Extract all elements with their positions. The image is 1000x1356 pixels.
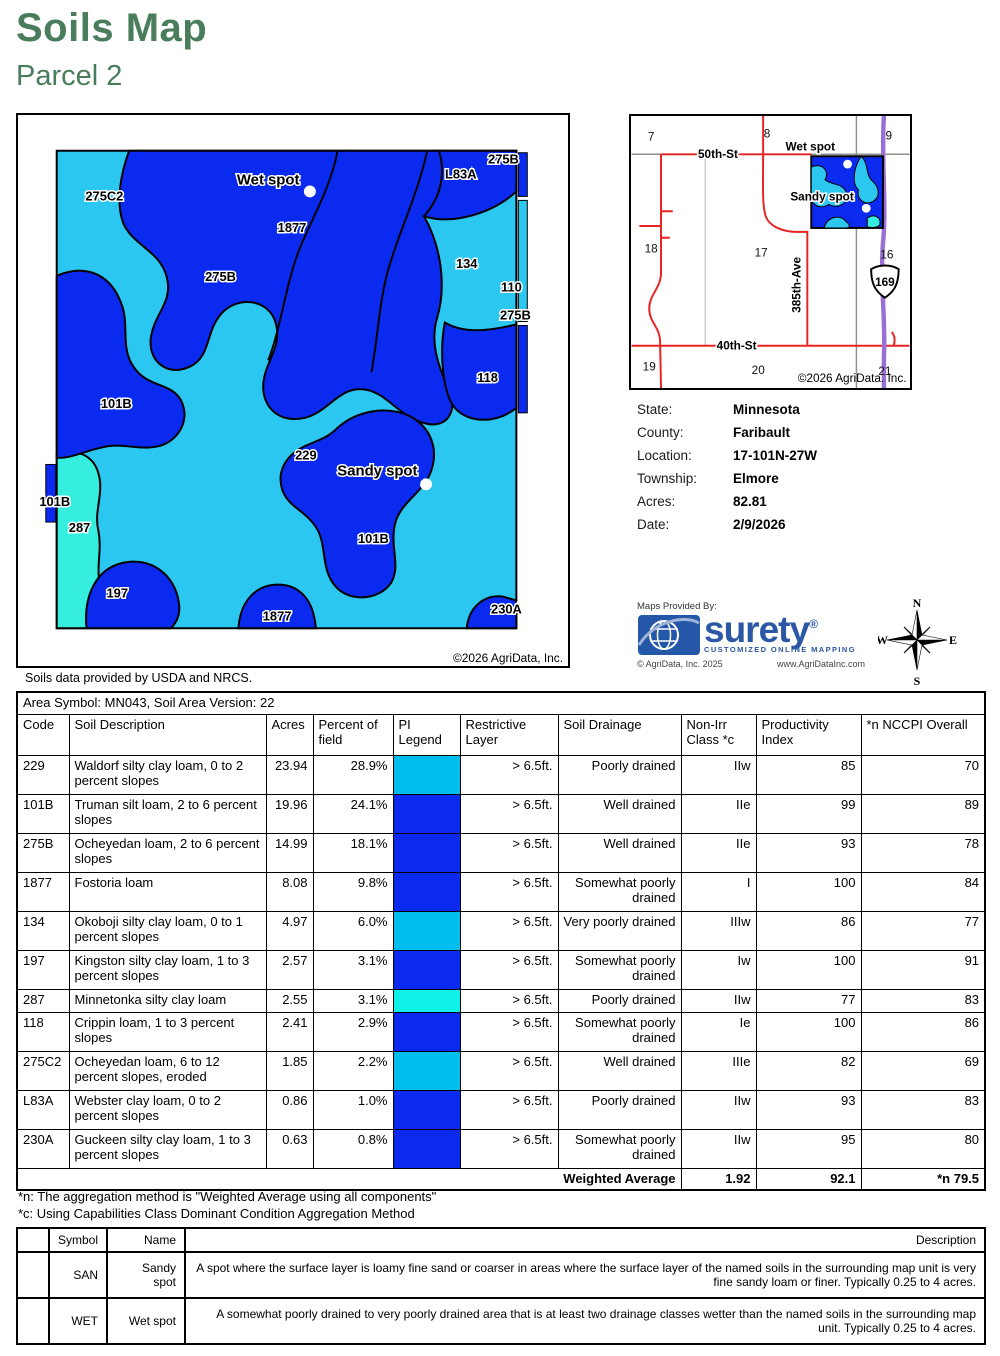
map-soil-label: 101B: [101, 396, 132, 411]
source-note: Soils data provided by USDA and NRCS.: [25, 671, 252, 685]
map-soil-label: 287: [69, 520, 91, 535]
soils-map-panel: 275C2Wet spot1877275BL83A275B134110275B1…: [16, 113, 570, 668]
map-soil-label: Sandy spot: [337, 463, 417, 479]
soil-acres: 1.85: [266, 1052, 313, 1091]
compass-west-label: W: [878, 633, 888, 647]
weighted-average-label: Weighted Average: [17, 1169, 681, 1191]
legend-blank: [17, 1298, 49, 1344]
productivity-index: 93: [756, 834, 861, 873]
legend-name: Wet spot: [107, 1298, 185, 1344]
soil-code: 197: [17, 951, 69, 990]
weighted-average-row: Weighted Average1.9292.1*n 79.5: [17, 1169, 985, 1191]
non-irr-class: IIw: [681, 990, 756, 1013]
map-soil-label: 110: [501, 280, 522, 295]
soil-description: Okoboji silty clay loam, 0 to 1 percent …: [69, 912, 266, 951]
pi-legend-swatch: [393, 912, 460, 951]
restrictive-layer: > 6.5ft.: [460, 912, 558, 951]
column-header: Percent of field: [313, 715, 393, 756]
pi-legend-swatch: [393, 1013, 460, 1052]
pi-legend-swatch: [393, 795, 460, 834]
non-irr-class: IIe: [681, 795, 756, 834]
legend-symbol: SAN: [49, 1252, 107, 1298]
column-header: Soil Description: [69, 715, 266, 756]
soil-code: L83A: [17, 1091, 69, 1130]
pi-legend-swatch: [393, 951, 460, 990]
column-header: Non-Irr Class *c: [681, 715, 756, 756]
map-soil-label: 197: [107, 585, 129, 600]
info-label: State:: [637, 402, 733, 417]
footnote: *c: Using Capabilities Class Dominant Co…: [18, 1205, 436, 1222]
productivity-index: 100: [756, 1013, 861, 1052]
map-soil-label: 230A: [491, 601, 522, 616]
productivity-index: 99: [756, 795, 861, 834]
legend-column-header: Symbol: [49, 1228, 107, 1252]
section-number: 16: [880, 248, 894, 261]
legend-blank: [17, 1252, 49, 1298]
restrictive-layer: > 6.5ft.: [460, 756, 558, 795]
productivity-index: 77: [756, 990, 861, 1013]
map-soil-label: L83A: [445, 167, 477, 182]
non-irr-class: IIw: [681, 1130, 756, 1169]
soil-percent: 18.1%: [313, 834, 393, 873]
non-irr-class: IIe: [681, 834, 756, 873]
productivity-index: 100: [756, 873, 861, 912]
spot-legend-table: SymbolNameDescription SANSandy spotA spo…: [16, 1227, 986, 1345]
info-label: Township:: [637, 471, 733, 486]
non-irr-class: I: [681, 873, 756, 912]
legend-name: Sandy spot: [107, 1252, 185, 1298]
compass-east-label: E: [949, 633, 957, 647]
soil-percent: 6.0%: [313, 912, 393, 951]
non-irr-class: Iw: [681, 951, 756, 990]
pi-legend-swatch: [393, 756, 460, 795]
soil-description: Fostoria loam: [69, 873, 266, 912]
map-soil-label: 275B: [500, 308, 531, 323]
weighted-non-irr-class: 1.92: [681, 1169, 756, 1191]
soil-table-row: 134Okoboji silty clay loam, 0 to 1 perce…: [17, 912, 985, 951]
map-soil-label: 134: [456, 256, 478, 271]
soil-acres: 19.96: [266, 795, 313, 834]
restrictive-layer: > 6.5ft.: [460, 990, 558, 1013]
soil-percent: 1.0%: [313, 1091, 393, 1130]
info-value: 2/9/2026: [733, 517, 786, 532]
soil-acres: 14.99: [266, 834, 313, 873]
soil-data-table: Area Symbol: MN043, Soil Area Version: 2…: [16, 691, 986, 1191]
weighted-nccpi-overall: *n 79.5: [861, 1169, 985, 1191]
soil-sliver: [518, 325, 527, 412]
page-title: Soils Map: [16, 6, 207, 51]
non-irr-class: IIw: [681, 756, 756, 795]
soil-drainage: Well drained: [558, 795, 681, 834]
soil-percent: 9.8%: [313, 873, 393, 912]
section-number: 7: [648, 131, 655, 144]
nccpi-overall: 84: [861, 873, 985, 912]
soil-drainage: Poorly drained: [558, 1091, 681, 1130]
soil-drainage: Well drained: [558, 1052, 681, 1091]
highway-169-shield: 169: [871, 266, 898, 298]
pi-legend-swatch: [393, 990, 460, 1013]
compass-north-label: N: [913, 596, 922, 610]
info-row: County:Faribault: [637, 421, 917, 444]
info-label: County:: [637, 425, 733, 440]
surety-branding: Maps Provided By: surety® CUSTOMIZED ONL…: [637, 601, 869, 669]
restrictive-layer: > 6.5ft.: [460, 795, 558, 834]
soil-code: 118: [17, 1013, 69, 1052]
map-soil-label: 1877: [278, 220, 307, 235]
soil-acres: 2.57: [266, 951, 313, 990]
soil-description: Ocheyedan loam, 2 to 6 percent slopes: [69, 834, 266, 873]
map-attribution: ©2026 AgriData, Inc.: [453, 651, 563, 665]
soil-percent: 2.9%: [313, 1013, 393, 1052]
soil-percent: 3.1%: [313, 951, 393, 990]
soil-table-row: 1877Fostoria loam8.089.8%> 6.5ft.Somewha…: [17, 873, 985, 912]
legend-table-section: SymbolNameDescription SANSandy spotA spo…: [16, 1227, 984, 1345]
soil-table-row: 287Minnetonka silty clay loam2.553.1%> 6…: [17, 990, 985, 1013]
agridata-website: www.AgriDataInc.com: [777, 659, 865, 669]
restrictive-layer: > 6.5ft.: [460, 873, 558, 912]
nccpi-overall: 91: [861, 951, 985, 990]
page-subtitle: Parcel 2: [16, 60, 122, 93]
nccpi-overall: 69: [861, 1052, 985, 1091]
column-header: Code: [17, 715, 69, 756]
area-symbol-header: Area Symbol: MN043, Soil Area Version: 2…: [17, 692, 985, 715]
soil-sliver: [518, 200, 527, 321]
svg-text:169: 169: [875, 276, 895, 289]
spot-marker: [843, 160, 852, 169]
soil-table-row: 275BOcheyedan loam, 2 to 6 percent slope…: [17, 834, 985, 873]
soil-table-section: Area Symbol: MN043, Soil Area Version: 2…: [16, 691, 984, 1191]
non-irr-class: IIw: [681, 1091, 756, 1130]
restrictive-layer: > 6.5ft.: [460, 1052, 558, 1091]
agridata-copyright: © AgriData, Inc. 2025: [637, 659, 723, 669]
road-label: Sandy spot: [790, 190, 853, 203]
map-soil-label: 275B: [488, 152, 519, 167]
section-number: 18: [645, 242, 659, 255]
weighted-productivity-index: 92.1: [756, 1169, 861, 1191]
restrictive-layer: > 6.5ft.: [460, 834, 558, 873]
surety-tagline: CUSTOMIZED ONLINE MAPPING: [704, 647, 856, 653]
soil-code: 1877: [17, 873, 69, 912]
column-header: Soil Drainage: [558, 715, 681, 756]
info-value: Elmore: [733, 471, 779, 486]
non-irr-class: IIIe: [681, 1052, 756, 1091]
soil-table-row: 275C2Ocheyedan loam, 6 to 12 percent slo…: [17, 1052, 985, 1091]
info-label: Date:: [637, 517, 733, 532]
soil-description: Ocheyedan loam, 6 to 12 percent slopes, …: [69, 1052, 266, 1091]
section-number: 9: [886, 130, 893, 143]
pi-legend-swatch: [393, 834, 460, 873]
soil-acres: 23.94: [266, 756, 313, 795]
surety-logo-text: surety®: [704, 609, 818, 650]
road-label: Wet spot: [786, 140, 836, 153]
soil-percent: 0.8%: [313, 1130, 393, 1169]
pi-legend-swatch: [393, 1052, 460, 1091]
soil-drainage: Somewhat poorly drained: [558, 873, 681, 912]
info-row: Acres:82.81: [637, 490, 917, 513]
spot-marker: [862, 204, 871, 213]
nccpi-overall: 70: [861, 756, 985, 795]
restrictive-layer: > 6.5ft.: [460, 951, 558, 990]
locator-map-image: 169 789181716192021 50th-StWet spotSandy…: [631, 116, 910, 388]
pi-legend-swatch: [393, 1091, 460, 1130]
soil-code: 101B: [17, 795, 69, 834]
productivity-index: 100: [756, 951, 861, 990]
compass-south-label: S: [914, 674, 921, 688]
legend-row: SANSandy spotA spot where the surface la…: [17, 1252, 985, 1298]
map-soil-label: 275C2: [85, 188, 123, 203]
info-row: Location:17-101N-27W: [637, 444, 917, 467]
soil-drainage: Somewhat poorly drained: [558, 1130, 681, 1169]
soil-table-row: L83AWebster clay loam, 0 to 2 percent sl…: [17, 1091, 985, 1130]
soil-description: Guckeen silty clay loam, 1 to 3 percent …: [69, 1130, 266, 1169]
soil-table-row: 118Crippin loam, 1 to 3 percent slopes2.…: [17, 1013, 985, 1052]
nccpi-overall: 78: [861, 834, 985, 873]
pi-legend-swatch: [393, 1130, 460, 1169]
info-value: Faribault: [733, 425, 790, 440]
soil-drainage: Somewhat poorly drained: [558, 951, 681, 990]
soil-code: 275C2: [17, 1052, 69, 1091]
productivity-index: 95: [756, 1130, 861, 1169]
surety-globe-icon: [637, 614, 701, 656]
info-row: Township:Elmore: [637, 467, 917, 490]
non-irr-class: Ie: [681, 1013, 756, 1052]
info-value: 17-101N-27W: [733, 448, 817, 463]
locator-attribution: ©2026 AgriData. Inc.: [798, 372, 907, 385]
soil-percent: 2.2%: [313, 1052, 393, 1091]
productivity-index: 82: [756, 1052, 861, 1091]
info-value: 82.81: [733, 494, 767, 509]
info-value: Minnesota: [733, 402, 800, 417]
soils-map-image: 275C2Wet spot1877275BL83A275B134110275B1…: [18, 115, 568, 666]
soil-acres: 2.41: [266, 1013, 313, 1052]
soil-drainage: Well drained: [558, 834, 681, 873]
restrictive-layer: > 6.5ft.: [460, 1130, 558, 1169]
soil-description: Minnetonka silty clay loam: [69, 990, 266, 1013]
nccpi-overall: 77: [861, 912, 985, 951]
soil-acres: 0.86: [266, 1091, 313, 1130]
soil-sliver: [518, 153, 527, 197]
road-label: 40th-St: [717, 340, 757, 353]
soil-table-row: 101BTruman silt loam, 2 to 6 percent slo…: [17, 795, 985, 834]
info-row: State:Minnesota: [637, 398, 917, 421]
section-number: 17: [755, 246, 768, 259]
soil-code: 275B: [17, 834, 69, 873]
map-soil-label: 101B: [39, 494, 70, 509]
info-label: Acres:: [637, 494, 733, 509]
soil-table-row: 197Kingston silty clay loam, 1 to 3 perc…: [17, 951, 985, 990]
nccpi-overall: 89: [861, 795, 985, 834]
soil-table-row: 230AGuckeen silty clay loam, 1 to 3 perc…: [17, 1130, 985, 1169]
nccpi-overall: 86: [861, 1013, 985, 1052]
spot-marker: [420, 478, 432, 490]
soil-percent: 3.1%: [313, 990, 393, 1013]
nccpi-overall: 80: [861, 1130, 985, 1169]
column-header: Acres: [266, 715, 313, 756]
map-soil-label: 101B: [358, 531, 389, 546]
road-label: 385th-Ave: [790, 257, 803, 313]
productivity-index: 86: [756, 912, 861, 951]
legend-column-header: Name: [107, 1228, 185, 1252]
column-header: Productivity Index: [756, 715, 861, 756]
footnotes: *n: The aggregation method is "Weighted …: [18, 1188, 436, 1222]
soil-acres: 0.63: [266, 1130, 313, 1169]
nccpi-overall: 83: [861, 990, 985, 1013]
soil-drainage: Very poorly drained: [558, 912, 681, 951]
footnote: *n: The aggregation method is "Weighted …: [18, 1188, 436, 1205]
map-soil-label: 229: [295, 447, 317, 462]
registered-mark: ®: [809, 617, 818, 631]
non-irr-class: IIIw: [681, 912, 756, 951]
soil-table-row: 229Waldorf silty clay loam, 0 to 2 perce…: [17, 756, 985, 795]
compass-rose-icon: N S W E: [878, 596, 958, 688]
soil-percent: 24.1%: [313, 795, 393, 834]
info-row: Date:2/9/2026: [637, 513, 917, 536]
legend-row: WETWet spotA somewhat poorly drained to …: [17, 1298, 985, 1344]
map-soil-label: 275B: [205, 269, 236, 284]
productivity-index: 85: [756, 756, 861, 795]
soil-description: Truman silt loam, 2 to 6 percent slopes: [69, 795, 266, 834]
soil-acres: 4.97: [266, 912, 313, 951]
info-label: Location:: [637, 448, 733, 463]
legend-column-header: [17, 1228, 49, 1252]
column-header: Restrictive Layer: [460, 715, 558, 756]
soil-drainage: Poorly drained: [558, 756, 681, 795]
map-soil-label: Wet spot: [237, 172, 300, 188]
nccpi-overall: 83: [861, 1091, 985, 1130]
soil-code: 229: [17, 756, 69, 795]
pi-legend-swatch: [393, 873, 460, 912]
section-number: 8: [764, 128, 771, 141]
section-number: 19: [643, 360, 656, 373]
road-label: 50th-St: [698, 148, 738, 161]
soil-description: Webster clay loam, 0 to 2 percent slopes: [69, 1091, 266, 1130]
soil-description: Crippin loam, 1 to 3 percent slopes: [69, 1013, 266, 1052]
legend-column-header: Description: [185, 1228, 985, 1252]
soil-acres: 2.55: [266, 990, 313, 1013]
soil-code: 134: [17, 912, 69, 951]
legend-symbol: WET: [49, 1298, 107, 1344]
restrictive-layer: > 6.5ft.: [460, 1091, 558, 1130]
productivity-index: 93: [756, 1091, 861, 1130]
soil-drainage: Poorly drained: [558, 990, 681, 1013]
legend-description: A somewhat poorly drained to very poorly…: [185, 1298, 985, 1344]
soil-code: 230A: [17, 1130, 69, 1169]
restrictive-layer: > 6.5ft.: [460, 1013, 558, 1052]
column-header: *n NCCPI Overall: [861, 715, 985, 756]
soil-drainage: Somewhat poorly drained: [558, 1013, 681, 1052]
soil-description: Waldorf silty clay loam, 0 to 2 percent …: [69, 756, 266, 795]
column-header: PI Legend: [393, 715, 460, 756]
soil-percent: 28.9%: [313, 756, 393, 795]
map-soil-label: 1877: [263, 608, 292, 623]
map-soil-label: 118: [477, 370, 498, 385]
soil-acres: 8.08: [266, 873, 313, 912]
soils-map-report: Soils Map Parcel 2: [0, 0, 1000, 1356]
section-number: 20: [752, 364, 766, 377]
parcel-info: State:MinnesotaCounty:FaribaultLocation:…: [637, 398, 917, 536]
locator-map-panel: 169 789181716192021 50th-StWet spotSandy…: [629, 114, 912, 390]
soil-code: 287: [17, 990, 69, 1013]
spot-marker: [304, 185, 316, 197]
legend-description: A spot where the surface layer is loamy …: [185, 1252, 985, 1298]
soil-description: Kingston silty clay loam, 1 to 3 percent…: [69, 951, 266, 990]
